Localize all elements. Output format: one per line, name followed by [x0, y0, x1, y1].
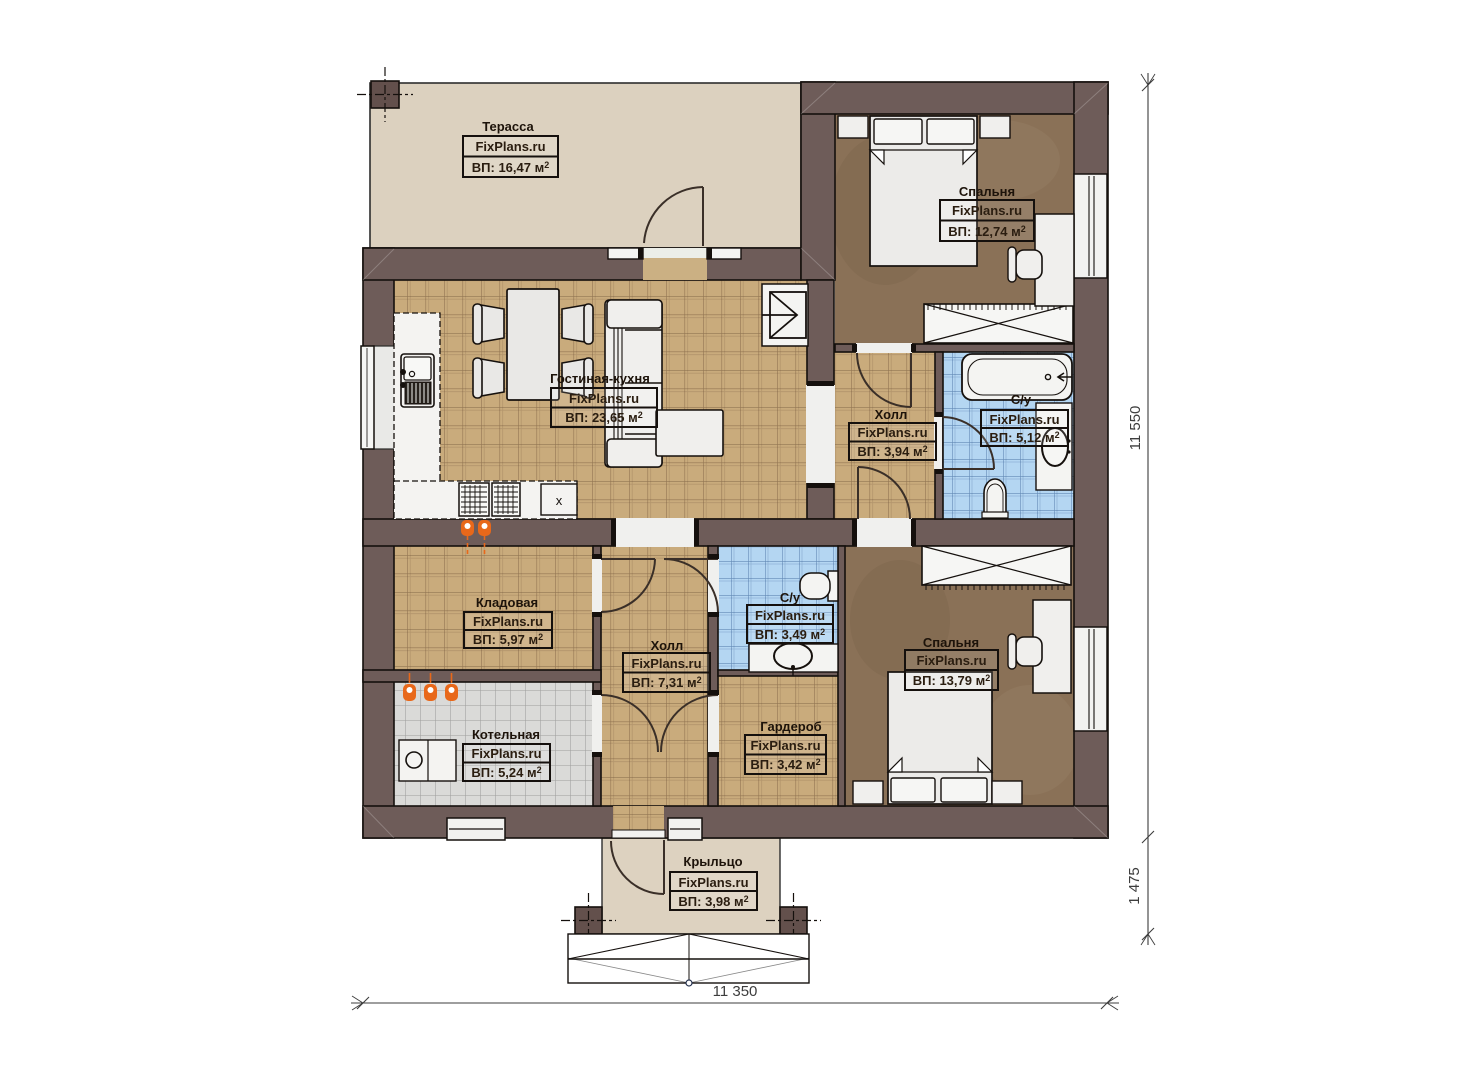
svg-text:FixPlans.ru: FixPlans.ru [857, 425, 927, 440]
svg-text:FixPlans.ru: FixPlans.ru [631, 656, 701, 671]
svg-text:FixPlans.ru: FixPlans.ru [678, 875, 748, 890]
svg-text:x: x [556, 493, 563, 508]
svg-text:Котельная: Котельная [472, 727, 540, 742]
svg-text:11 350: 11 350 [713, 983, 758, 1000]
svg-text:FixPlans.ru: FixPlans.ru [750, 738, 820, 753]
svg-text:ВП: 3,94 м2: ВП: 3,94 м2 [857, 444, 927, 459]
svg-text:ВП: 3,49 м2: ВП: 3,49 м2 [755, 627, 825, 642]
svg-text:FixPlans.ru: FixPlans.ru [952, 203, 1022, 218]
svg-text:FixPlans.ru: FixPlans.ru [569, 391, 639, 406]
svg-text:ВП: 7,31 м2: ВП: 7,31 м2 [631, 675, 701, 690]
svg-text:ВП: 12,74 м2: ВП: 12,74 м2 [948, 224, 1025, 239]
svg-text:FixPlans.ru: FixPlans.ru [916, 653, 986, 668]
svg-text:FixPlans.ru: FixPlans.ru [473, 614, 543, 629]
svg-text:ВП: 23,65 м2: ВП: 23,65 м2 [565, 410, 642, 425]
svg-text:Гардероб: Гардероб [760, 719, 821, 734]
svg-text:FixPlans.ru: FixPlans.ru [989, 412, 1059, 427]
svg-text:Гостиная-кухня: Гостиная-кухня [550, 371, 650, 386]
svg-text:1 475: 1 475 [1126, 867, 1143, 905]
svg-text:11 550: 11 550 [1127, 406, 1144, 451]
svg-text:ВП: 5,24 м2: ВП: 5,24 м2 [471, 765, 541, 780]
svg-text:Спальня: Спальня [923, 635, 979, 650]
svg-text:FixPlans.ru: FixPlans.ru [755, 608, 825, 623]
svg-text:FixPlans.ru: FixPlans.ru [475, 139, 545, 154]
svg-text:Холл: Холл [875, 407, 908, 422]
svg-text:Кладовая: Кладовая [476, 595, 538, 610]
svg-text:ВП: 13,79 м2: ВП: 13,79 м2 [913, 673, 990, 688]
svg-text:ВП: 5,97 м2: ВП: 5,97 м2 [473, 632, 543, 647]
svg-text:Холл: Холл [651, 638, 684, 653]
svg-text:ВП: 3,98 м2: ВП: 3,98 м2 [678, 894, 748, 909]
svg-text:ВП: 5,12 м2: ВП: 5,12 м2 [989, 430, 1059, 445]
svg-text:ВП: 3,42 м2: ВП: 3,42 м2 [750, 757, 820, 772]
svg-text:Терасса: Терасса [482, 119, 534, 134]
svg-text:Спальня: Спальня [959, 184, 1015, 199]
svg-text:ВП: 16,47 м2: ВП: 16,47 м2 [472, 160, 549, 175]
svg-text:FixPlans.ru: FixPlans.ru [471, 746, 541, 761]
svg-text:С/у: С/у [1011, 392, 1032, 407]
svg-text:С/у: С/у [780, 590, 801, 605]
svg-text:Крыльцо: Крыльцо [683, 854, 742, 869]
